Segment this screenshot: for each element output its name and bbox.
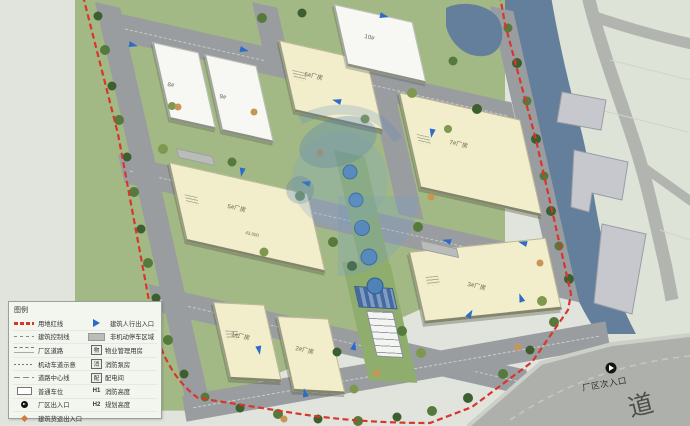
plan-height-badge: H2 <box>91 401 102 409</box>
watermark-logo <box>286 107 418 276</box>
legend-item: 非机动停车区域 <box>85 331 157 345</box>
legend-item: 道路中心线 <box>13 371 85 385</box>
legend-item: 普通车位 <box>13 385 85 399</box>
legend-left-column: 用地红线 建筑控制线 厂区道路 机动车道示意 道路中心线 <box>13 317 85 426</box>
parking-space-symbol <box>13 387 35 396</box>
site-red-line-symbol <box>13 319 35 328</box>
pond <box>446 4 502 56</box>
legend-label: 消防高度 <box>105 387 130 396</box>
fire-pump-badge: 消 <box>91 359 102 369</box>
legend-label: 规划高度 <box>105 400 130 409</box>
legend-item: 建筑控制线 <box>13 331 85 345</box>
legend-label: 用地红线 <box>38 319 63 328</box>
legend-item: 消 消防泵房 <box>85 358 157 372</box>
legend-item: 厂区出入口 <box>13 399 85 413</box>
secondary-gate-icon <box>606 363 617 374</box>
fire-height-badge: H1 <box>91 387 102 395</box>
factory-gate-symbol <box>13 400 35 409</box>
factory-road-symbol <box>13 346 35 355</box>
legend-item: 建筑人行出入口 <box>85 317 157 331</box>
motor-lane-symbol <box>13 360 35 369</box>
legend-item: H2 规划高度 <box>85 399 157 413</box>
legend-label: 非机动停车区域 <box>110 332 154 341</box>
legend-body: 用地红线 建筑控制线 厂区道路 机动车道示意 道路中心线 <box>13 317 157 426</box>
non-motor-parking-symbol <box>85 332 107 341</box>
legend-item: 建筑货运出入口 <box>13 412 85 426</box>
legend-item: 用地红线 <box>13 317 85 331</box>
legend-label: 普通车位 <box>38 387 63 396</box>
property-badge: 物 <box>91 345 102 355</box>
legend-item: 配 配电间 <box>85 371 157 385</box>
legend-label: 厂区道路 <box>38 346 63 355</box>
legend-label: 配电间 <box>105 373 124 382</box>
legend-right-column: 建筑人行出入口 非机动停车区域 物 物业管理用房 消 消防泵房 配 配电间 <box>85 317 157 426</box>
legend-title: 图例 <box>14 305 157 315</box>
legend-label: 厂区出入口 <box>38 400 69 409</box>
freight-entrance-symbol <box>13 414 35 423</box>
legend-label: 建筑控制线 <box>38 332 69 341</box>
legend-label: 建筑人行出入口 <box>110 319 154 328</box>
legend-label: 消防泵房 <box>105 360 130 369</box>
legend-item: H1 消防高度 <box>85 385 157 399</box>
control-line-symbol <box>13 332 35 341</box>
legend-label: 机动车道示意 <box>38 360 76 369</box>
pedestrian-entrance-symbol <box>85 319 107 328</box>
site-plan-canvas: 8# 9# 6#厂房 10# 7#厂房 3#厂房 5#厂房 1#厂房 2#厂房 … <box>0 0 690 426</box>
legend-label: 建筑货运出入口 <box>38 414 82 423</box>
southeast-road <box>468 335 690 426</box>
power-room-badge: 配 <box>91 373 102 383</box>
legend-label: 道路中心线 <box>38 373 69 382</box>
centerline-symbol <box>13 373 35 382</box>
legend-item: 物 物业管理用房 <box>85 344 157 358</box>
legend-item: 机动车道示意 <box>13 358 85 372</box>
legend-label: 物业管理用房 <box>105 346 143 355</box>
legend-item: 厂区道路 <box>13 344 85 358</box>
legend: 图例 用地红线 建筑控制线 厂区道路 机动车道示意 <box>8 301 162 419</box>
